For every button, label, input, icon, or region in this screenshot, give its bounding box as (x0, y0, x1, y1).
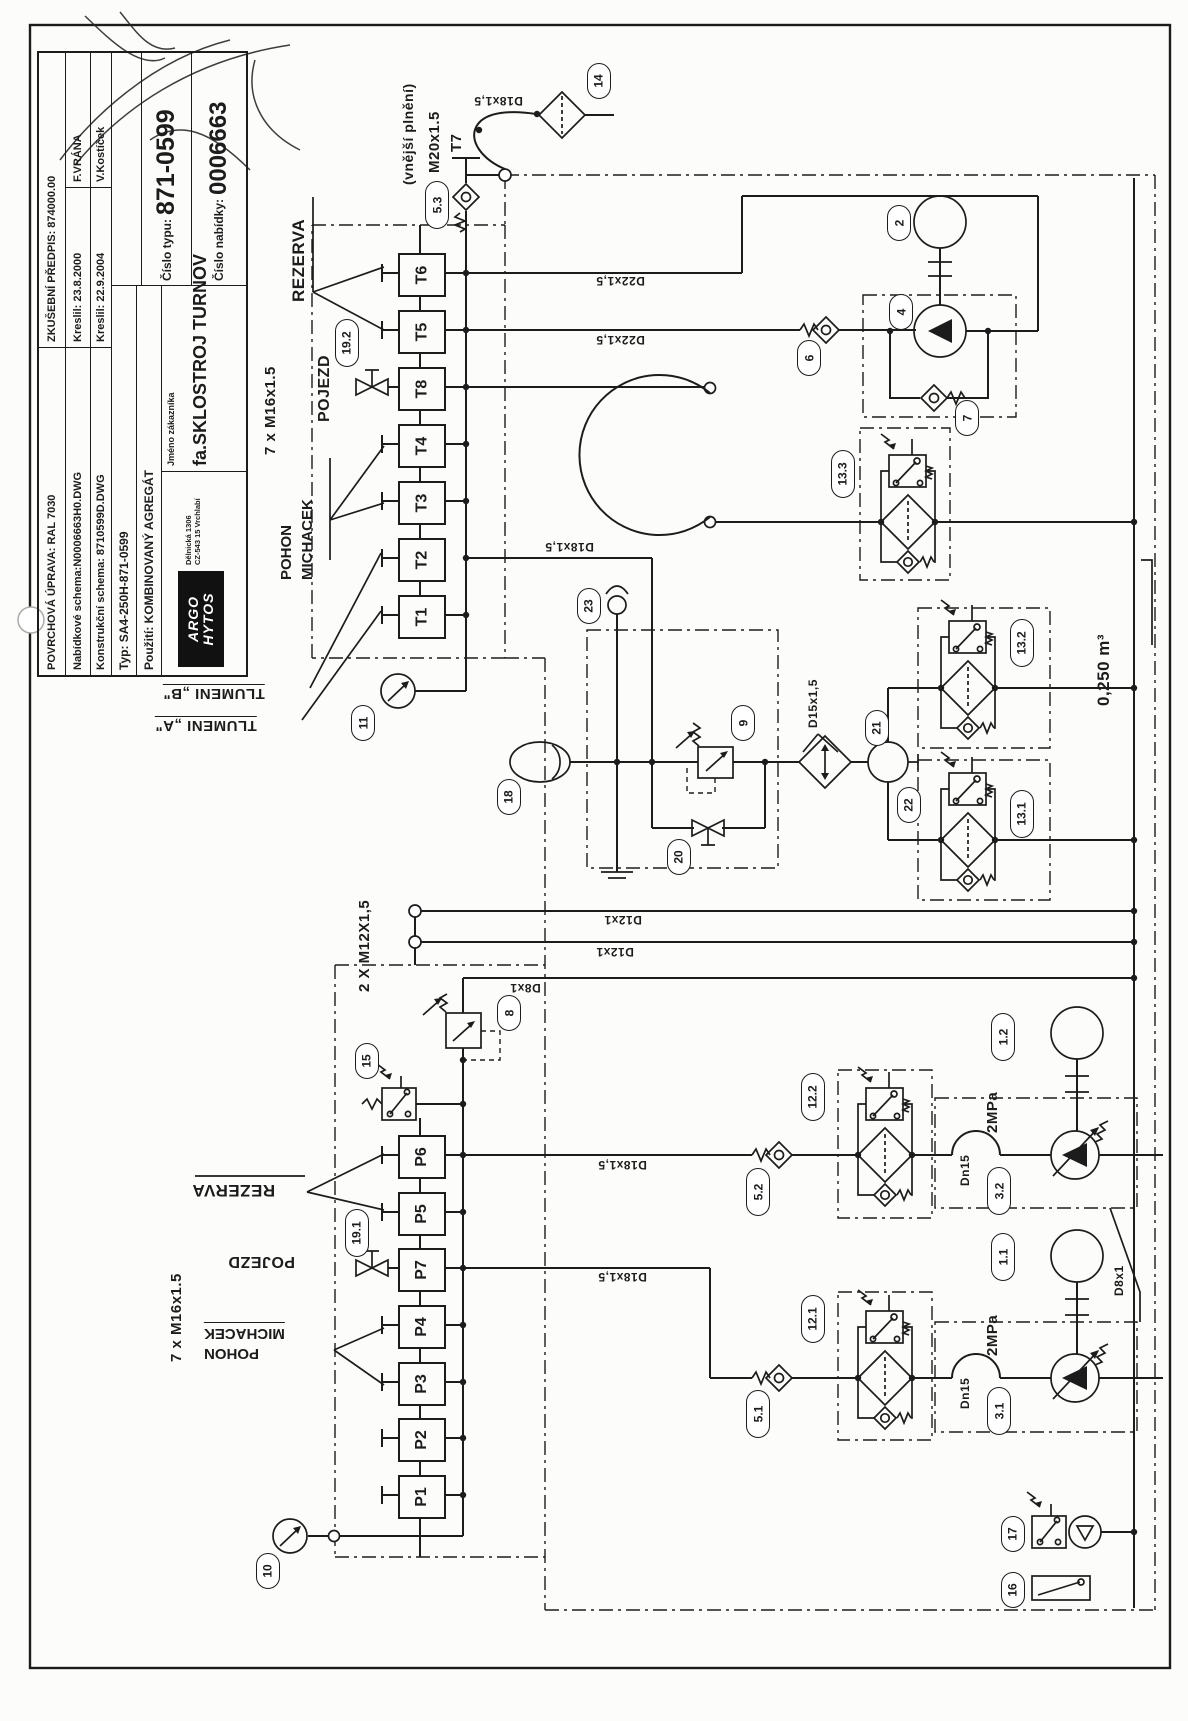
component-badge-12-2: 12.2 (801, 1073, 825, 1121)
label-pojezd-bottom: POJEZD (228, 1252, 295, 1270)
component-badge-16: 16 (1001, 1572, 1025, 1608)
port-box-p3: P3 (398, 1362, 446, 1406)
component-badge-7: 7 (955, 400, 979, 436)
label-pohon-michacek-bottom: POHON MICHACEK (204, 1322, 285, 1363)
port-box-t3: T3 (398, 481, 446, 525)
component-badge-2: 2 (887, 205, 911, 241)
label-m16-bottom: 7 x M16x1.5 (168, 1273, 185, 1362)
port-label: T5 (413, 323, 431, 342)
label-rezerva-bottom: REZERVA (192, 1180, 275, 1200)
label-dn15-2: Dn15 (958, 1378, 972, 1409)
port-box-p5: P5 (398, 1192, 446, 1236)
type-row: Typ: SA4-250H-871-0599 (112, 285, 137, 675)
component-badge-18: 18 (497, 779, 521, 815)
component-badge-15: 15 (355, 1043, 379, 1079)
usage-row: Použití: KOMBINOVANÝ AGREGÁT (137, 285, 162, 675)
offer-number-label: Číslo nabídky: (212, 199, 226, 281)
label-d18-return: D18x1,5 (545, 540, 594, 554)
label-tlumeni-a: TLUMENI „A" (155, 716, 257, 734)
label-rezerva-top: REZERVA (289, 219, 309, 302)
label-m20: M20x1.5 (426, 111, 443, 173)
label-tank-volume: 0,250 m³ (1094, 634, 1114, 706)
label-d18-p6: D18x1,5 (598, 1158, 647, 1172)
type-number-value: 871-0599 (152, 109, 181, 215)
customer-name: fa.SKLOSTROJ TURNOV (190, 292, 211, 466)
component-badge-13-3: 13.3 (831, 450, 855, 498)
label-d18-fill: D18x1,5 (474, 94, 523, 108)
port-box-t8: T8 (398, 367, 446, 411)
component-badge-6: 6 (797, 340, 821, 376)
label-michacek-b: MICHACEK (204, 1323, 285, 1343)
offer-number-cell: Číslo nabídky: 0006663 (192, 53, 246, 285)
label-2mpa-2: 2MPa (984, 1315, 1001, 1356)
argo-hytos-logo: ARGO HYTOS (178, 571, 224, 667)
type-number-label: Číslo typu: (160, 219, 174, 281)
label-m16-top: 7 x M16x1.5 (262, 366, 279, 455)
port-box-t4: T4 (398, 424, 446, 468)
drawn-date-1: Kreslil: 23.8.2000 (66, 187, 91, 347)
drawn-by-1: F.VRÁNA (66, 53, 91, 187)
port-label: T2 (413, 551, 431, 570)
customer-label: Jméno zákazníka (166, 292, 176, 466)
component-badge-22: 22 (897, 787, 921, 823)
port-box-t1: T1 (398, 595, 446, 639)
label-d8-right: D8x1 (1112, 1265, 1126, 1296)
component-badge-1-2: 1.2 (991, 1013, 1015, 1061)
label-michacek: MICHACEK (297, 499, 318, 580)
label-pohon-b: POHON (204, 1343, 285, 1363)
label-pojezd-top: POJEZD (316, 355, 334, 422)
schematic-page: { "title_block": { "r1l": "POVRCHOVÁ ÚPR… (0, 0, 1188, 1721)
surface-finish: POVRCHOVÁ ÚPRAVA: RAL 7030 (39, 347, 66, 675)
component-badge-12-1: 12.1 (801, 1295, 825, 1343)
component-badge-3-1: 3.1 (987, 1387, 1011, 1435)
logo-address-2: CZ-543 15 Vrchlabí (193, 498, 202, 565)
port-box-p7: P7 (398, 1248, 446, 1292)
label-d8-top: D8x1 (510, 981, 541, 995)
logo-line1: ARGO (186, 596, 201, 642)
component-badge-10: 10 (256, 1553, 280, 1589)
numbers-column: Číslo typu: 871-0599 Číslo nabídky: 0006… (112, 53, 246, 285)
component-badge-11: 11 (351, 705, 375, 741)
port-box-p2: P2 (398, 1418, 446, 1462)
label-tlumeni-b: TLUMENI „B" (163, 684, 265, 702)
port-label: T8 (413, 380, 431, 399)
drawn-date-2: Kreslil: 22.9.2004 (91, 187, 112, 347)
component-badge-8: 8 (497, 995, 521, 1031)
component-badge-5-3: 5.3 (425, 181, 449, 229)
component-badge-17: 17 (1001, 1516, 1025, 1552)
component-badge-21: 21 (865, 710, 889, 746)
component-badge-4: 4 (889, 294, 913, 330)
component-badge-20: 20 (667, 839, 691, 875)
customer-cell: Jméno zákazníka fa.SKLOSTROJ TURNOV (162, 285, 246, 472)
component-badge-13-2: 13.2 (1010, 619, 1034, 667)
label-dn15-1: Dn15 (958, 1155, 972, 1186)
construction-schema: Konstrukční schema: 8710599D.DWG (91, 347, 112, 675)
label-pohon: POHON (276, 499, 297, 580)
label-d12-1: D12x1 (604, 913, 642, 927)
component-badge-13-1: 13.1 (1010, 790, 1034, 838)
port-box-t6: T6 (398, 253, 446, 297)
component-badge-9: 9 (731, 705, 755, 741)
port-label: T6 (413, 266, 431, 285)
label-m12: 2 X M12X1,5 (356, 900, 373, 992)
logo-line2: HYTOS (201, 593, 216, 646)
label-d15: D15x1,5 (806, 679, 820, 728)
component-badge-14: 14 (587, 63, 611, 99)
logo-address: Dělnická 1306 CZ-543 15 Vrchlabí (184, 498, 202, 565)
label-t7: T7 (448, 133, 465, 152)
port-label: P2 (413, 1430, 431, 1450)
logo-cell: ARGO HYTOS Dělnická 1306 CZ-543 15 Vrchl… (162, 471, 246, 675)
label-pohon-michacek-top: POHON MICHACEK (276, 499, 318, 580)
port-label: T4 (413, 437, 431, 456)
type-number-cell: Číslo typu: 871-0599 (141, 53, 192, 285)
port-box-p6: P6 (398, 1135, 446, 1179)
drawn-by-2: V.Kostíček (91, 53, 112, 187)
component-badge-19-1: 19.1 (345, 1209, 369, 1257)
logo-address-1: Dělnická 1306 (184, 498, 193, 565)
port-label: P3 (413, 1374, 431, 1394)
port-label: P5 (413, 1204, 431, 1224)
port-box-p4: P4 (398, 1305, 446, 1349)
label-d22-1: D22x1,5 (596, 274, 645, 288)
label-2mpa-1: 2MPa (984, 1092, 1001, 1133)
label-d12-2: D12x1 (596, 945, 634, 959)
port-label: P6 (413, 1147, 431, 1167)
port-label: P4 (413, 1317, 431, 1337)
component-badge-3-2: 3.2 (987, 1167, 1011, 1215)
label-vnejsi-plneni: (vnější plnění) (400, 83, 416, 185)
component-badge-19-2: 19.2 (335, 319, 359, 367)
component-badge-5-2: 5.2 (746, 1168, 770, 1216)
offer-number-value: 0006663 (205, 102, 233, 195)
offer-schema: Nabídkové schema:N0006663H0.DWG (66, 347, 91, 675)
port-box-p1: P1 (398, 1475, 446, 1519)
port-box-t5: T5 (398, 310, 446, 354)
port-label: P7 (413, 1260, 431, 1280)
component-badge-1-1: 1.1 (991, 1233, 1015, 1281)
component-badge-5-1: 5.1 (746, 1390, 770, 1438)
port-box-t2: T2 (398, 538, 446, 582)
port-label: T1 (413, 608, 431, 627)
label-d22-2: D22x1,5 (596, 333, 645, 347)
port-label: P1 (413, 1487, 431, 1507)
port-label: T3 (413, 494, 431, 513)
title-block: POVRCHOVÁ ÚPRAVA: RAL 7030 ZKUŠEBNÍ PŘED… (37, 51, 248, 677)
test-spec: ZKUŠEBNÍ PŘEDPIS: 874000.00 (39, 53, 66, 347)
component-badge-23: 23 (577, 588, 601, 624)
label-d18-p7: D18x1,5 (598, 1270, 647, 1284)
